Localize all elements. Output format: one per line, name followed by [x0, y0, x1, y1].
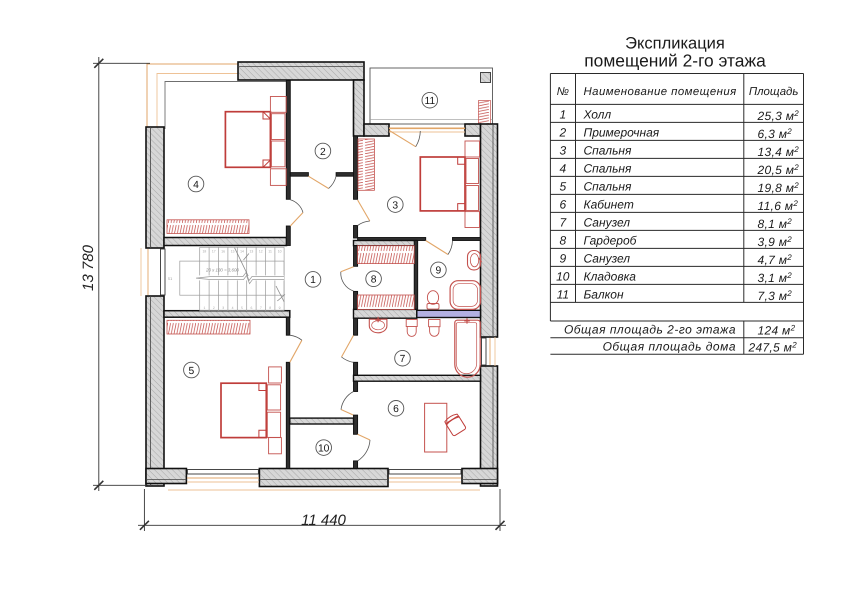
svg-text:11,6 м2: 11,6 м2 [758, 199, 799, 213]
svg-text:№: № [557, 86, 569, 98]
svg-text:5: 5 [559, 179, 566, 193]
svg-text:25,3 м2: 25,3 м2 [757, 109, 800, 123]
svg-text:6,3 м2: 6,3 м2 [758, 127, 793, 141]
svg-text:10: 10 [318, 443, 330, 454]
svg-text:12: 12 [259, 250, 263, 254]
svg-text:4,7 м2: 4,7 м2 [758, 253, 793, 267]
svg-text:14: 14 [240, 250, 244, 254]
svg-text:11 440: 11 440 [301, 512, 346, 529]
svg-text:3,1 м2: 3,1 м2 [758, 271, 793, 285]
svg-text:18: 18 [203, 250, 207, 254]
svg-text:10: 10 [556, 269, 570, 283]
svg-text:247,5 м2: 247,5 м2 [748, 341, 798, 355]
svg-text:5: 5 [241, 306, 243, 310]
svg-text:2: 2 [213, 306, 215, 310]
svg-text:Холл: Холл [583, 107, 612, 121]
svg-text:10: 10 [278, 250, 282, 254]
svg-text:16: 16 [221, 250, 225, 254]
svg-text:3: 3 [222, 306, 224, 310]
svg-text:20 x 180 = 3,600: 20 x 180 = 3,600 [205, 268, 239, 273]
svg-text:13: 13 [250, 250, 254, 254]
svg-text:6: 6 [393, 404, 399, 415]
svg-text:7: 7 [400, 354, 406, 365]
svg-text:17: 17 [212, 250, 216, 254]
svg-text:1: 1 [203, 306, 205, 310]
svg-text:8: 8 [559, 233, 566, 247]
svg-text:4: 4 [193, 180, 199, 191]
svg-text:13 780: 13 780 [80, 244, 97, 291]
svg-text:Гардероб: Гардероб [584, 233, 638, 247]
svg-text:помещений 2-го этажа: помещений 2-го этажа [584, 51, 766, 71]
svg-text:Общая площадь 2-го этажа: Общая площадь 2-го этажа [564, 323, 736, 337]
svg-text:Санузел: Санузел [584, 215, 631, 229]
svg-text:Наименование помещения: Наименование помещения [584, 86, 737, 98]
svg-text:15: 15 [231, 250, 235, 254]
svg-text:7: 7 [260, 306, 262, 310]
svg-text:Примерочная: Примерочная [584, 125, 660, 139]
svg-text:Площадь: Площадь [749, 86, 798, 98]
svg-text:19,8 м2: 19,8 м2 [758, 181, 800, 195]
svg-text:8: 8 [371, 275, 377, 286]
svg-text:11: 11 [268, 250, 272, 254]
svg-text:2: 2 [320, 147, 326, 158]
svg-text:9: 9 [279, 306, 281, 310]
svg-text:20,5 м2: 20,5 м2 [757, 163, 800, 177]
svg-text:Санузел: Санузел [584, 251, 631, 265]
svg-text:Спальня: Спальня [584, 143, 632, 157]
svg-text:4: 4 [232, 306, 234, 310]
svg-text:3: 3 [392, 200, 398, 211]
svg-text:6: 6 [250, 306, 252, 310]
svg-text:5: 5 [189, 366, 195, 377]
svg-text:7,3 м2: 7,3 м2 [758, 289, 793, 303]
svg-text:4: 4 [559, 161, 566, 175]
svg-text:8: 8 [269, 306, 271, 310]
svg-text:9: 9 [436, 266, 442, 277]
svg-text:3,9 м2: 3,9 м2 [758, 235, 793, 249]
svg-text:Спальня: Спальня [584, 179, 632, 193]
svg-text:Балкон: Балкон [584, 287, 624, 301]
svg-text:2: 2 [558, 125, 566, 139]
svg-text:3: 3 [559, 143, 566, 157]
svg-text:8,1 м2: 8,1 м2 [758, 217, 793, 231]
svg-text:9: 9 [559, 251, 566, 265]
svg-text:51: 51 [168, 277, 172, 281]
svg-text:Спальня: Спальня [584, 161, 632, 175]
svg-text:124 м2: 124 м2 [758, 324, 796, 338]
svg-text:Кладовка: Кладовка [584, 269, 637, 283]
svg-text:1: 1 [310, 275, 316, 286]
svg-text:6: 6 [559, 197, 566, 211]
svg-text:11: 11 [424, 96, 435, 107]
svg-text:1: 1 [559, 107, 566, 121]
svg-text:11: 11 [557, 287, 569, 301]
svg-text:Общая площадь дома: Общая площадь дома [603, 340, 736, 354]
svg-text:13,4 м2: 13,4 м2 [758, 145, 800, 159]
svg-text:Кабинет: Кабинет [584, 197, 634, 211]
